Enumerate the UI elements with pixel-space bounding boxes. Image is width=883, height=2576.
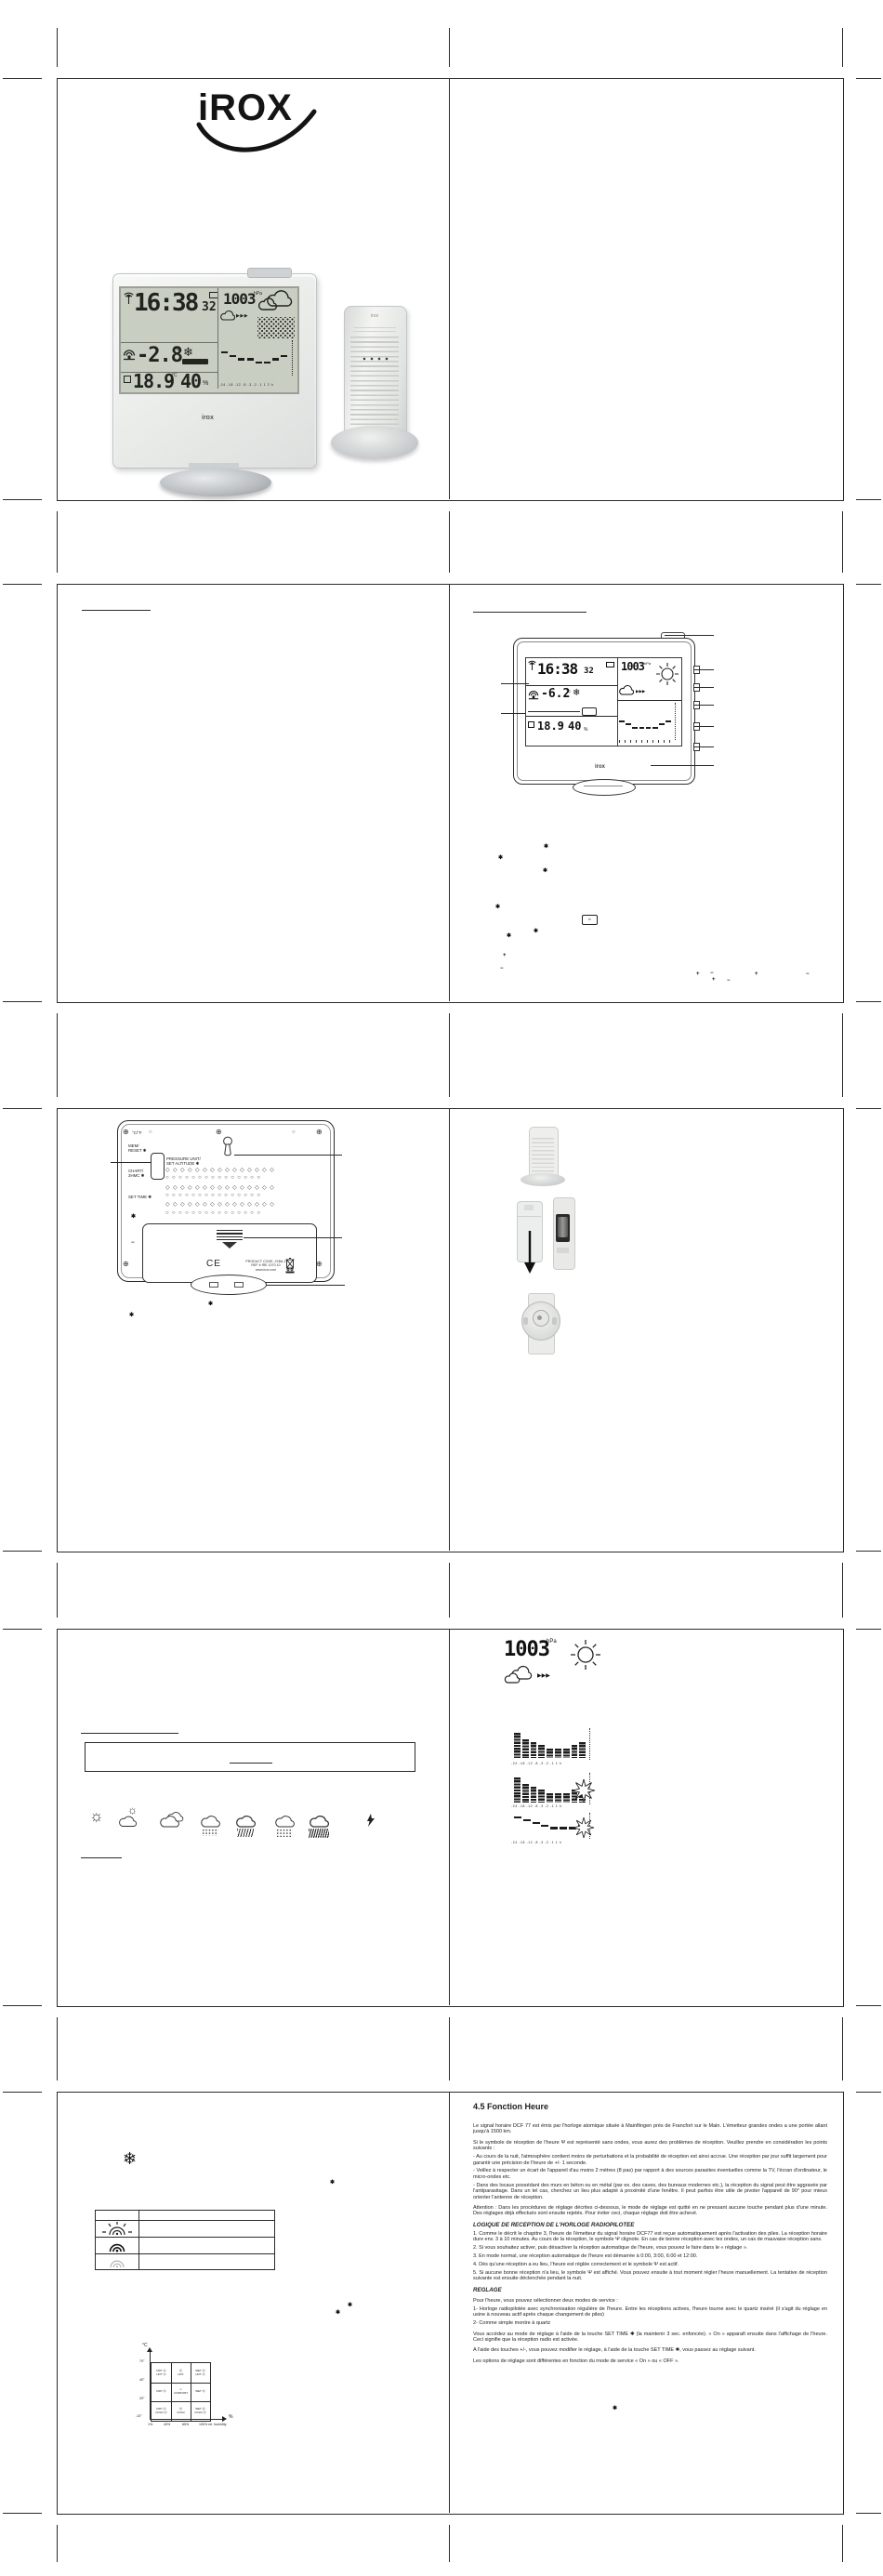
- crop-mark: [449, 1563, 450, 1618]
- crop-mark: [57, 511, 58, 573]
- crop-mark: [449, 2017, 450, 2081]
- page-frame: [57, 1629, 844, 2007]
- crop-mark: [449, 511, 450, 573]
- crop-mark: [856, 1001, 881, 1002]
- crop-mark: [3, 78, 42, 79]
- crop-mark: [57, 2017, 58, 2081]
- crop-mark: [3, 1108, 42, 1109]
- page-column-divider: [449, 1108, 450, 1551]
- annotation-mark: ✱: [534, 929, 538, 934]
- annotation-mark: +: [712, 977, 716, 983]
- annotation-mark: ✱: [208, 1301, 213, 1307]
- crop-mark: [856, 78, 881, 79]
- crop-mark: [57, 2525, 58, 2562]
- annotation-mark: ✱: [544, 844, 548, 850]
- crop-mark: [856, 2092, 881, 2093]
- crop-mark: [856, 1551, 881, 1552]
- annotation-mark: +: [696, 971, 700, 977]
- page-frame: [57, 2092, 844, 2515]
- page-frame: [57, 584, 844, 1003]
- crop-mark: [856, 2513, 881, 2514]
- crop-mark: [842, 2017, 843, 2081]
- page-column-divider: [449, 584, 450, 1001]
- crop-mark: [3, 1629, 42, 1630]
- crop-mark: [449, 1013, 450, 1097]
- page-column-divider: [449, 1629, 450, 2005]
- annotation-mark: ✱: [495, 905, 500, 910]
- page-column-divider: [449, 78, 450, 499]
- annotation-mark: −: [131, 1240, 135, 1246]
- annotation-mark: ✱: [498, 855, 503, 861]
- crop-mark: [842, 2525, 843, 2562]
- crop-mark: [856, 2005, 881, 2006]
- annotation-mark: −: [710, 971, 714, 976]
- crop-mark: [842, 28, 843, 67]
- page-frame: [57, 78, 844, 501]
- crop-mark: [856, 1108, 881, 1109]
- annotation-mark: ✱: [330, 2180, 335, 2186]
- crop-mark: [449, 2525, 450, 2562]
- crop-mark: [57, 28, 58, 67]
- annotation-mark: +: [503, 953, 507, 958]
- crop-mark: [842, 1563, 843, 1618]
- annotation-mark: ✱: [336, 2310, 340, 2316]
- annotation-mark: −: [500, 966, 504, 971]
- crop-mark: [449, 28, 450, 67]
- annotation-mark: ✱: [131, 1214, 136, 1220]
- crop-mark: [856, 499, 881, 500]
- annotation-mark: ✱: [348, 2303, 352, 2308]
- crop-mark: [842, 511, 843, 573]
- crop-mark: [3, 584, 42, 585]
- annotation-mark: +: [755, 971, 758, 977]
- crop-mark: [3, 1001, 42, 1002]
- crop-mark: [3, 1551, 42, 1552]
- annotation-mark: −: [806, 971, 810, 977]
- page-frame: [57, 1108, 844, 1552]
- crop-mark: [842, 1013, 843, 1097]
- crop-mark: [856, 584, 881, 585]
- annotation-mark: ✱: [507, 933, 511, 939]
- annotation-mark: ✱: [129, 1313, 134, 1318]
- annotation-mark: ✱: [543, 868, 547, 874]
- page-column-divider: [449, 2092, 450, 2513]
- manual-page: iROX 16:38 32 1003 hPa ▶▶▶: [0, 0, 883, 2576]
- crop-mark: [57, 1563, 58, 1618]
- crop-mark: [3, 499, 42, 500]
- annotation-mark: ✱: [613, 2406, 617, 2411]
- crop-mark: [3, 2005, 42, 2006]
- annotation-mark: −: [727, 978, 731, 984]
- crop-mark: [3, 2092, 42, 2093]
- crop-mark: [3, 2513, 42, 2514]
- crop-mark: [57, 1013, 58, 1097]
- crop-mark: [856, 1629, 881, 1630]
